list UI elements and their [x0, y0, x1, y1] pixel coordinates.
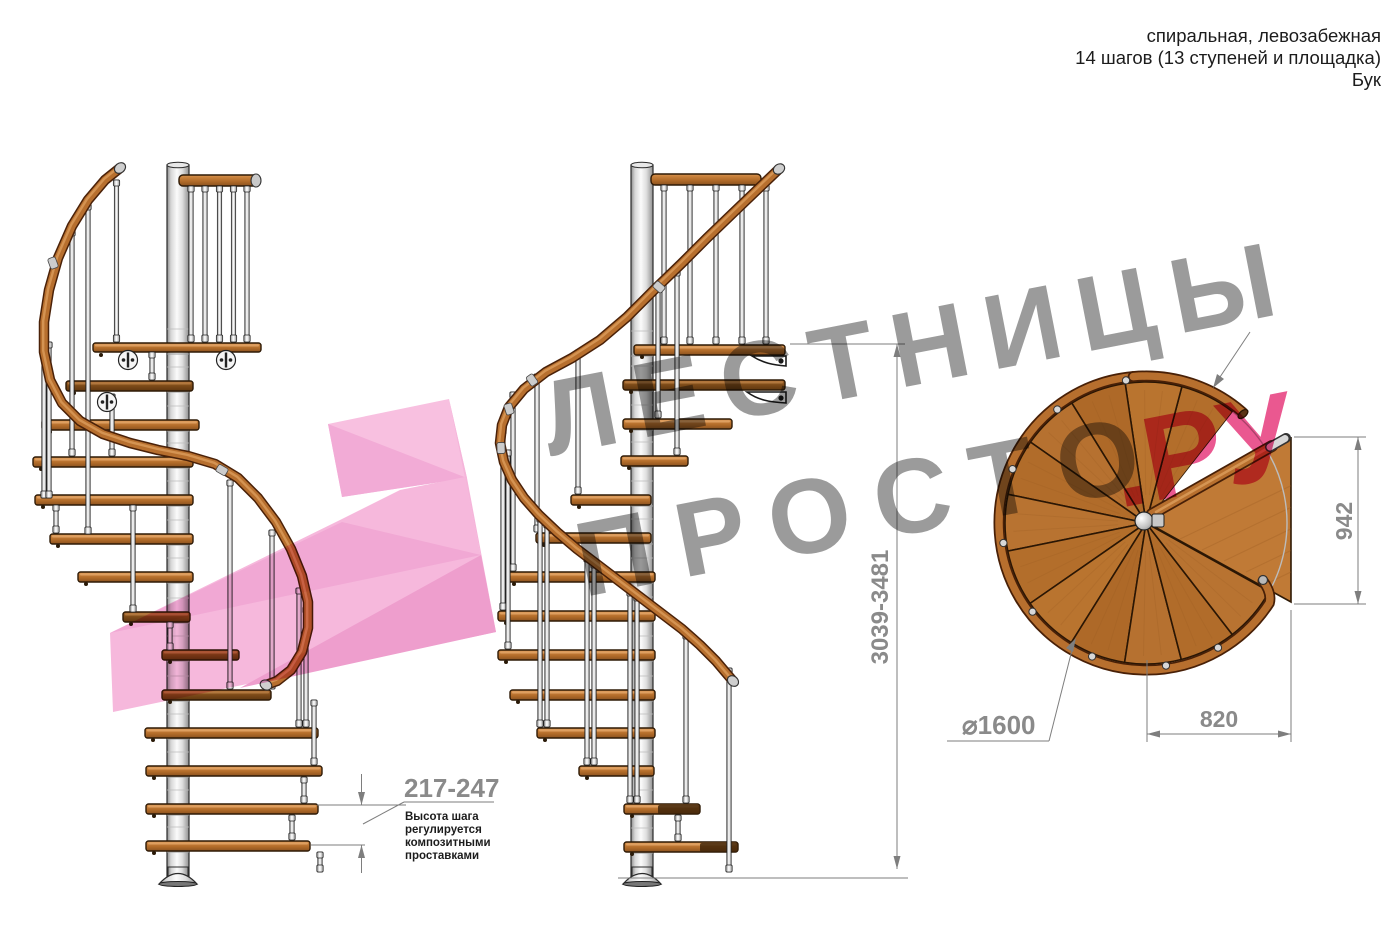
- svg-text:⌀1600: ⌀1600: [962, 710, 1036, 740]
- svg-text:14 шагов (13 ступеней и площад: 14 шагов (13 ступеней и площадка): [1075, 47, 1381, 68]
- svg-text:942: 942: [1331, 502, 1357, 540]
- svg-text:спиральная, левозабежная: спиральная, левозабежная: [1147, 25, 1381, 46]
- svg-text:Бук: Бук: [1352, 69, 1382, 90]
- svg-text:217-247: 217-247: [404, 773, 499, 803]
- svg-text:820: 820: [1200, 706, 1238, 732]
- svg-text:3039-3481: 3039-3481: [867, 550, 894, 665]
- svg-text:Высота шага регулируетсякомпоз: Высота шага регулируетсякомпозитнымипрос…: [405, 811, 491, 862]
